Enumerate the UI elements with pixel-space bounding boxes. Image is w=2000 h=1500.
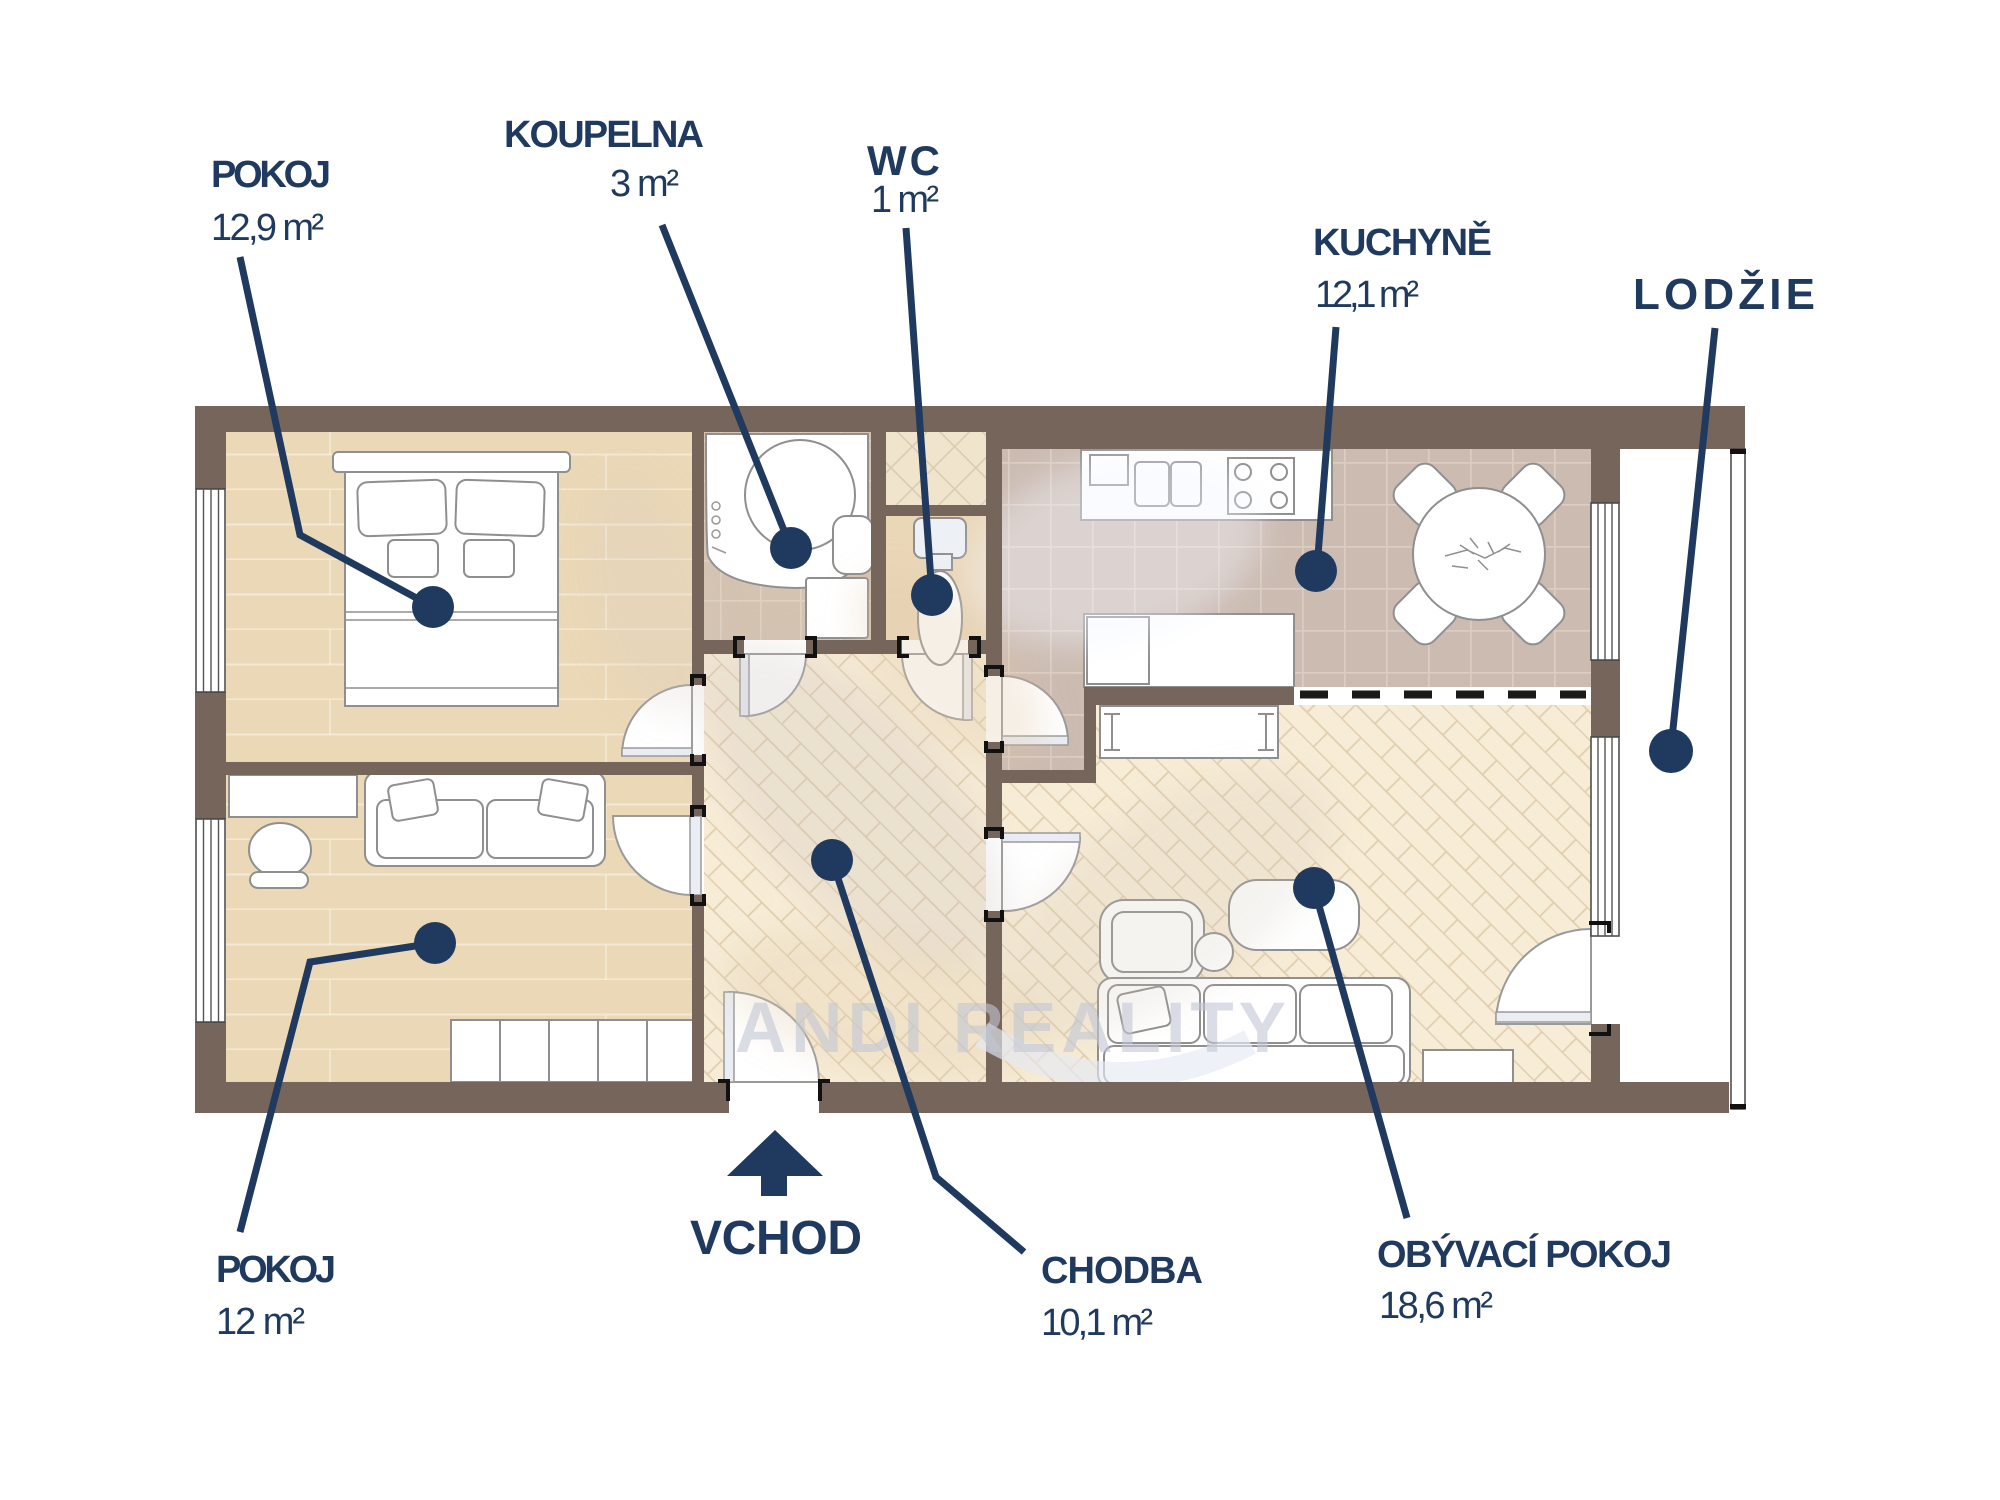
svg-text:3 m²: 3 m² bbox=[610, 163, 680, 205]
svg-text:12,1 m²: 12,1 m² bbox=[1315, 274, 1420, 316]
svg-text:10,1 m²: 10,1 m² bbox=[1041, 1302, 1154, 1344]
svg-text:KOUPELNA: KOUPELNA bbox=[504, 114, 706, 156]
svg-text:18,6 m²: 18,6 m² bbox=[1379, 1285, 1494, 1327]
svg-text:KUCHYNĚ: KUCHYNĚ bbox=[1313, 220, 1494, 264]
svg-text:POKOJ: POKOJ bbox=[211, 154, 333, 196]
svg-text:12,9 m²: 12,9 m² bbox=[211, 207, 325, 249]
svg-text:1 m²: 1 m² bbox=[871, 179, 940, 221]
svg-text:ANDI REALITY: ANDI REALITY bbox=[735, 989, 1290, 1068]
svg-text:12 m²: 12 m² bbox=[216, 1301, 306, 1343]
svg-text:POKOJ: POKOJ bbox=[216, 1249, 338, 1291]
svg-text:OBÝVACÍ POKOJ: OBÝVACÍ POKOJ bbox=[1377, 1232, 1674, 1276]
svg-text:WC: WC bbox=[867, 137, 943, 184]
svg-text:CHODBA: CHODBA bbox=[1041, 1250, 1205, 1292]
svg-text:LODŽIE: LODŽIE bbox=[1633, 269, 1817, 319]
svg-text:VCHOD: VCHOD bbox=[690, 1212, 864, 1265]
